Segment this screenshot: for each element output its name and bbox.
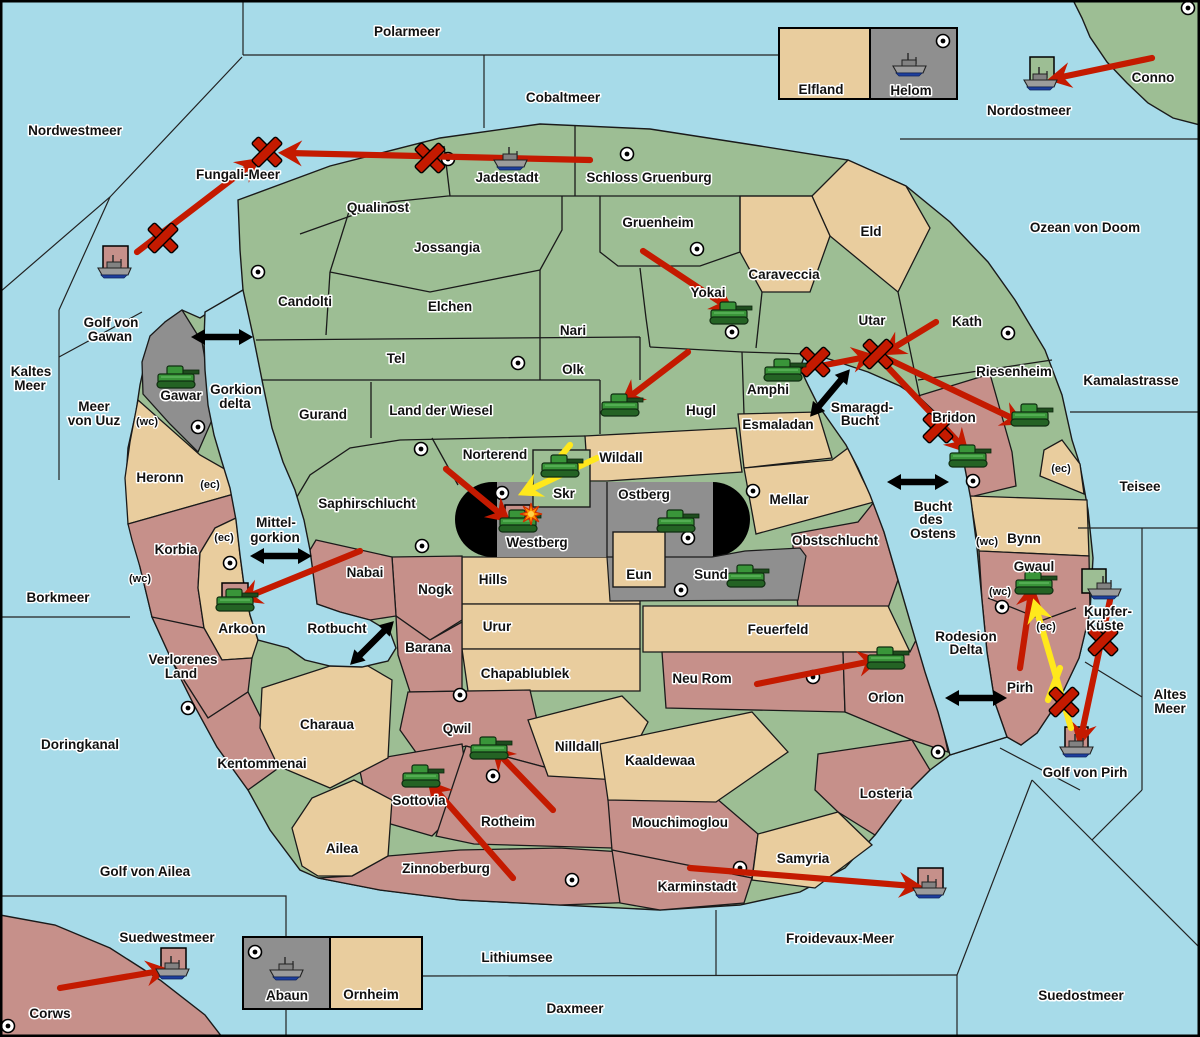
- modifier-label: (ec): [200, 479, 220, 491]
- region-label: Obstschlucht: [792, 533, 879, 548]
- sea-label: Meer: [14, 378, 46, 393]
- sea-label: Froidevaux-Meer: [786, 931, 895, 946]
- region-label: Pirh: [1007, 680, 1033, 695]
- region-label: Westberg: [506, 535, 567, 550]
- sea-label: Kaltes: [11, 364, 52, 379]
- sea-label: gorkion: [250, 530, 300, 545]
- sea-label: Doringkanal: [41, 737, 119, 752]
- region-label: Abaun: [266, 988, 308, 1003]
- region-label: Riesenheim: [976, 364, 1052, 379]
- capital-dot-icon: [682, 532, 695, 545]
- sea-label: Nordwestmeer: [28, 123, 123, 138]
- region-label: Jossangia: [414, 240, 481, 255]
- sea-label: Kamalastrasse: [1083, 373, 1179, 388]
- region-label: Bynn: [1007, 531, 1041, 546]
- capital-dot-icon: [252, 266, 265, 279]
- modifier-label: (ec): [214, 532, 234, 544]
- sea-label: von Uuz: [68, 413, 121, 428]
- region-label: Mellar: [769, 492, 809, 507]
- capital-dot-icon: [691, 243, 704, 256]
- region-label: Charaua: [300, 717, 355, 732]
- sea-label: Borkmeer: [26, 590, 90, 605]
- region-label: Gruenheim: [622, 215, 693, 230]
- sea-label: Küste: [1086, 618, 1124, 633]
- capital-dot-icon: [415, 443, 428, 456]
- capital-dot-icon: [454, 689, 467, 702]
- region-label: Neu Rom: [672, 671, 731, 686]
- region-label: Wildall: [599, 450, 642, 465]
- region-label: Gawar: [160, 388, 202, 403]
- region-label: Eld: [860, 224, 881, 239]
- capital-dot-icon: [182, 702, 195, 715]
- region-label: Saphirschlucht: [318, 496, 416, 511]
- region-label: Ornheim: [343, 987, 399, 1002]
- region-label: Barana: [405, 640, 451, 655]
- region-label: Sund: [694, 567, 728, 582]
- region-label: Chapablublek: [481, 666, 570, 681]
- region-label: Helom: [890, 83, 931, 98]
- region-label: Losteria: [860, 786, 913, 801]
- sea-label: Golf von Pirh: [1043, 765, 1128, 780]
- capital-dot-icon: [192, 421, 205, 434]
- sea-label: Altes: [1153, 687, 1186, 702]
- capital-dot-icon: [621, 148, 634, 161]
- sea-label: Gorkion: [210, 382, 262, 397]
- region-label: Ailea: [326, 841, 359, 856]
- region-label: Nilldall: [555, 739, 599, 754]
- region-label: Hills: [479, 572, 508, 587]
- capital-dot-icon: [566, 874, 579, 887]
- region-label: Elfland: [798, 82, 843, 97]
- sea-label: Polarmeer: [374, 24, 441, 39]
- game-map: NordwestmeerPolarmeerCobaltmeerFungali-M…: [0, 0, 1200, 1037]
- sea-label: Suedwestmeer: [119, 930, 215, 945]
- region-label: Sottovia: [392, 793, 446, 808]
- modifier-label: (wc): [976, 536, 998, 548]
- sea-label: Lithiumsee: [481, 950, 553, 965]
- sea-label: Ozean von Doom: [1030, 220, 1140, 235]
- region-label: Arkoon: [218, 621, 265, 636]
- region-label: Ostberg: [618, 487, 670, 502]
- region-label: Hugl: [686, 403, 716, 418]
- sea-label: Golf von Ailea: [100, 864, 191, 879]
- region-label: Schloss Gruenburg: [586, 170, 711, 185]
- region-label: Yokai: [690, 285, 725, 300]
- region-label: Rotheim: [481, 814, 535, 829]
- region-label: Orlon: [868, 690, 904, 705]
- region-label: Gurand: [299, 407, 347, 422]
- region-label: Verlorenes: [148, 652, 217, 667]
- explosion-icon: [520, 503, 542, 525]
- sea-label: Fungali-Meer: [196, 167, 281, 182]
- region-label: Urur: [483, 619, 512, 634]
- modifier-label: (ec): [1051, 463, 1071, 475]
- region-label: Caraveccia: [748, 267, 820, 282]
- region-label: Land der Wiesel: [389, 403, 492, 418]
- sea-label: Kupfer-: [1084, 604, 1132, 619]
- modifier-label: (ec): [1036, 621, 1056, 633]
- sea-label: delta: [219, 396, 251, 411]
- region-label: Feuerfeld: [748, 622, 809, 637]
- sea-label: Cobaltmeer: [526, 90, 601, 105]
- region-label: Olk: [562, 362, 584, 377]
- capital-dot-icon: [224, 557, 237, 570]
- region-label: Karminstadt: [658, 879, 737, 894]
- region-label: Amphi: [747, 382, 789, 397]
- region-label: Nari: [560, 323, 586, 338]
- region-label: Korbia: [155, 542, 198, 557]
- capital-dot-icon: [675, 584, 688, 597]
- region-label: Corws: [29, 1006, 70, 1021]
- capital-dot-icon: [496, 487, 509, 500]
- region-label: Qualinost: [347, 200, 410, 215]
- capital-dot-icon: [416, 540, 429, 553]
- sea-label: Gawan: [88, 329, 132, 344]
- region-label: Esmaladan: [742, 417, 813, 432]
- sea-label: Meer: [1154, 701, 1186, 716]
- capital-dot-icon: [967, 475, 980, 488]
- region-label: Land: [165, 666, 197, 681]
- capital-dot-icon: [932, 746, 945, 759]
- region-label: Bridon: [932, 410, 976, 425]
- region-label: Nabai: [347, 565, 384, 580]
- capital-dot-icon: [249, 946, 262, 959]
- sea-label: des: [919, 512, 942, 527]
- map-canvas[interactable]: NordwestmeerPolarmeerCobaltmeerFungali-M…: [0, 0, 1200, 1037]
- region-label: Nogk: [418, 582, 452, 597]
- sea-label: Rotbucht: [307, 621, 367, 636]
- sea-label: Mittel-: [256, 515, 296, 530]
- region-label: Samyria: [777, 851, 830, 866]
- modifier-label: (wc): [129, 573, 151, 585]
- capital-dot-icon: [1002, 327, 1015, 340]
- region-label: Elchen: [428, 299, 472, 314]
- region-label: Conno: [1132, 70, 1175, 85]
- modifier-label: (wc): [136, 416, 158, 428]
- region-label: Qwil: [443, 721, 472, 736]
- capital-dot-icon: [487, 770, 500, 783]
- region-label: Utar: [858, 313, 886, 328]
- capital-dot-icon: [726, 326, 739, 339]
- region-label: Heronn: [136, 470, 183, 485]
- sea-label: Meer: [78, 399, 110, 414]
- region-label: Kaaldewaa: [625, 753, 695, 768]
- region-label: Kath: [952, 314, 982, 329]
- capital-dot-icon: [512, 357, 525, 370]
- sea-label: Bucht: [841, 413, 880, 428]
- sea-label: Teisee: [1119, 479, 1161, 494]
- region-label: Tel: [387, 351, 406, 366]
- sea-label: Daxmeer: [546, 1001, 604, 1016]
- capital-dot-icon: [747, 485, 760, 498]
- region-label: Kentommenai: [217, 756, 306, 771]
- sea-label: Golf von: [84, 315, 139, 330]
- capital-dot-icon: [996, 601, 1009, 614]
- region-label: Jadestadt: [475, 170, 539, 185]
- region-label: Norterend: [463, 447, 528, 462]
- region-label: Eun: [626, 567, 652, 582]
- capital-dot-icon: [2, 1020, 15, 1033]
- region-label: Candolti: [278, 294, 332, 309]
- sea-label: Nordostmeer: [987, 103, 1072, 118]
- modifier-label: (wc): [989, 586, 1011, 598]
- sea-label: Suedostmeer: [1038, 988, 1124, 1003]
- region-label: Skr: [553, 486, 576, 501]
- sea-label: Delta: [949, 642, 983, 657]
- capital-dot-icon: [937, 35, 950, 48]
- capital-dot-icon: [1182, 2, 1195, 15]
- region-label: Gwaul: [1014, 559, 1055, 574]
- region-label: Mouchimoglou: [632, 815, 728, 830]
- sea-label: Ostens: [910, 526, 956, 541]
- region-label: Zinnoberburg: [402, 861, 490, 876]
